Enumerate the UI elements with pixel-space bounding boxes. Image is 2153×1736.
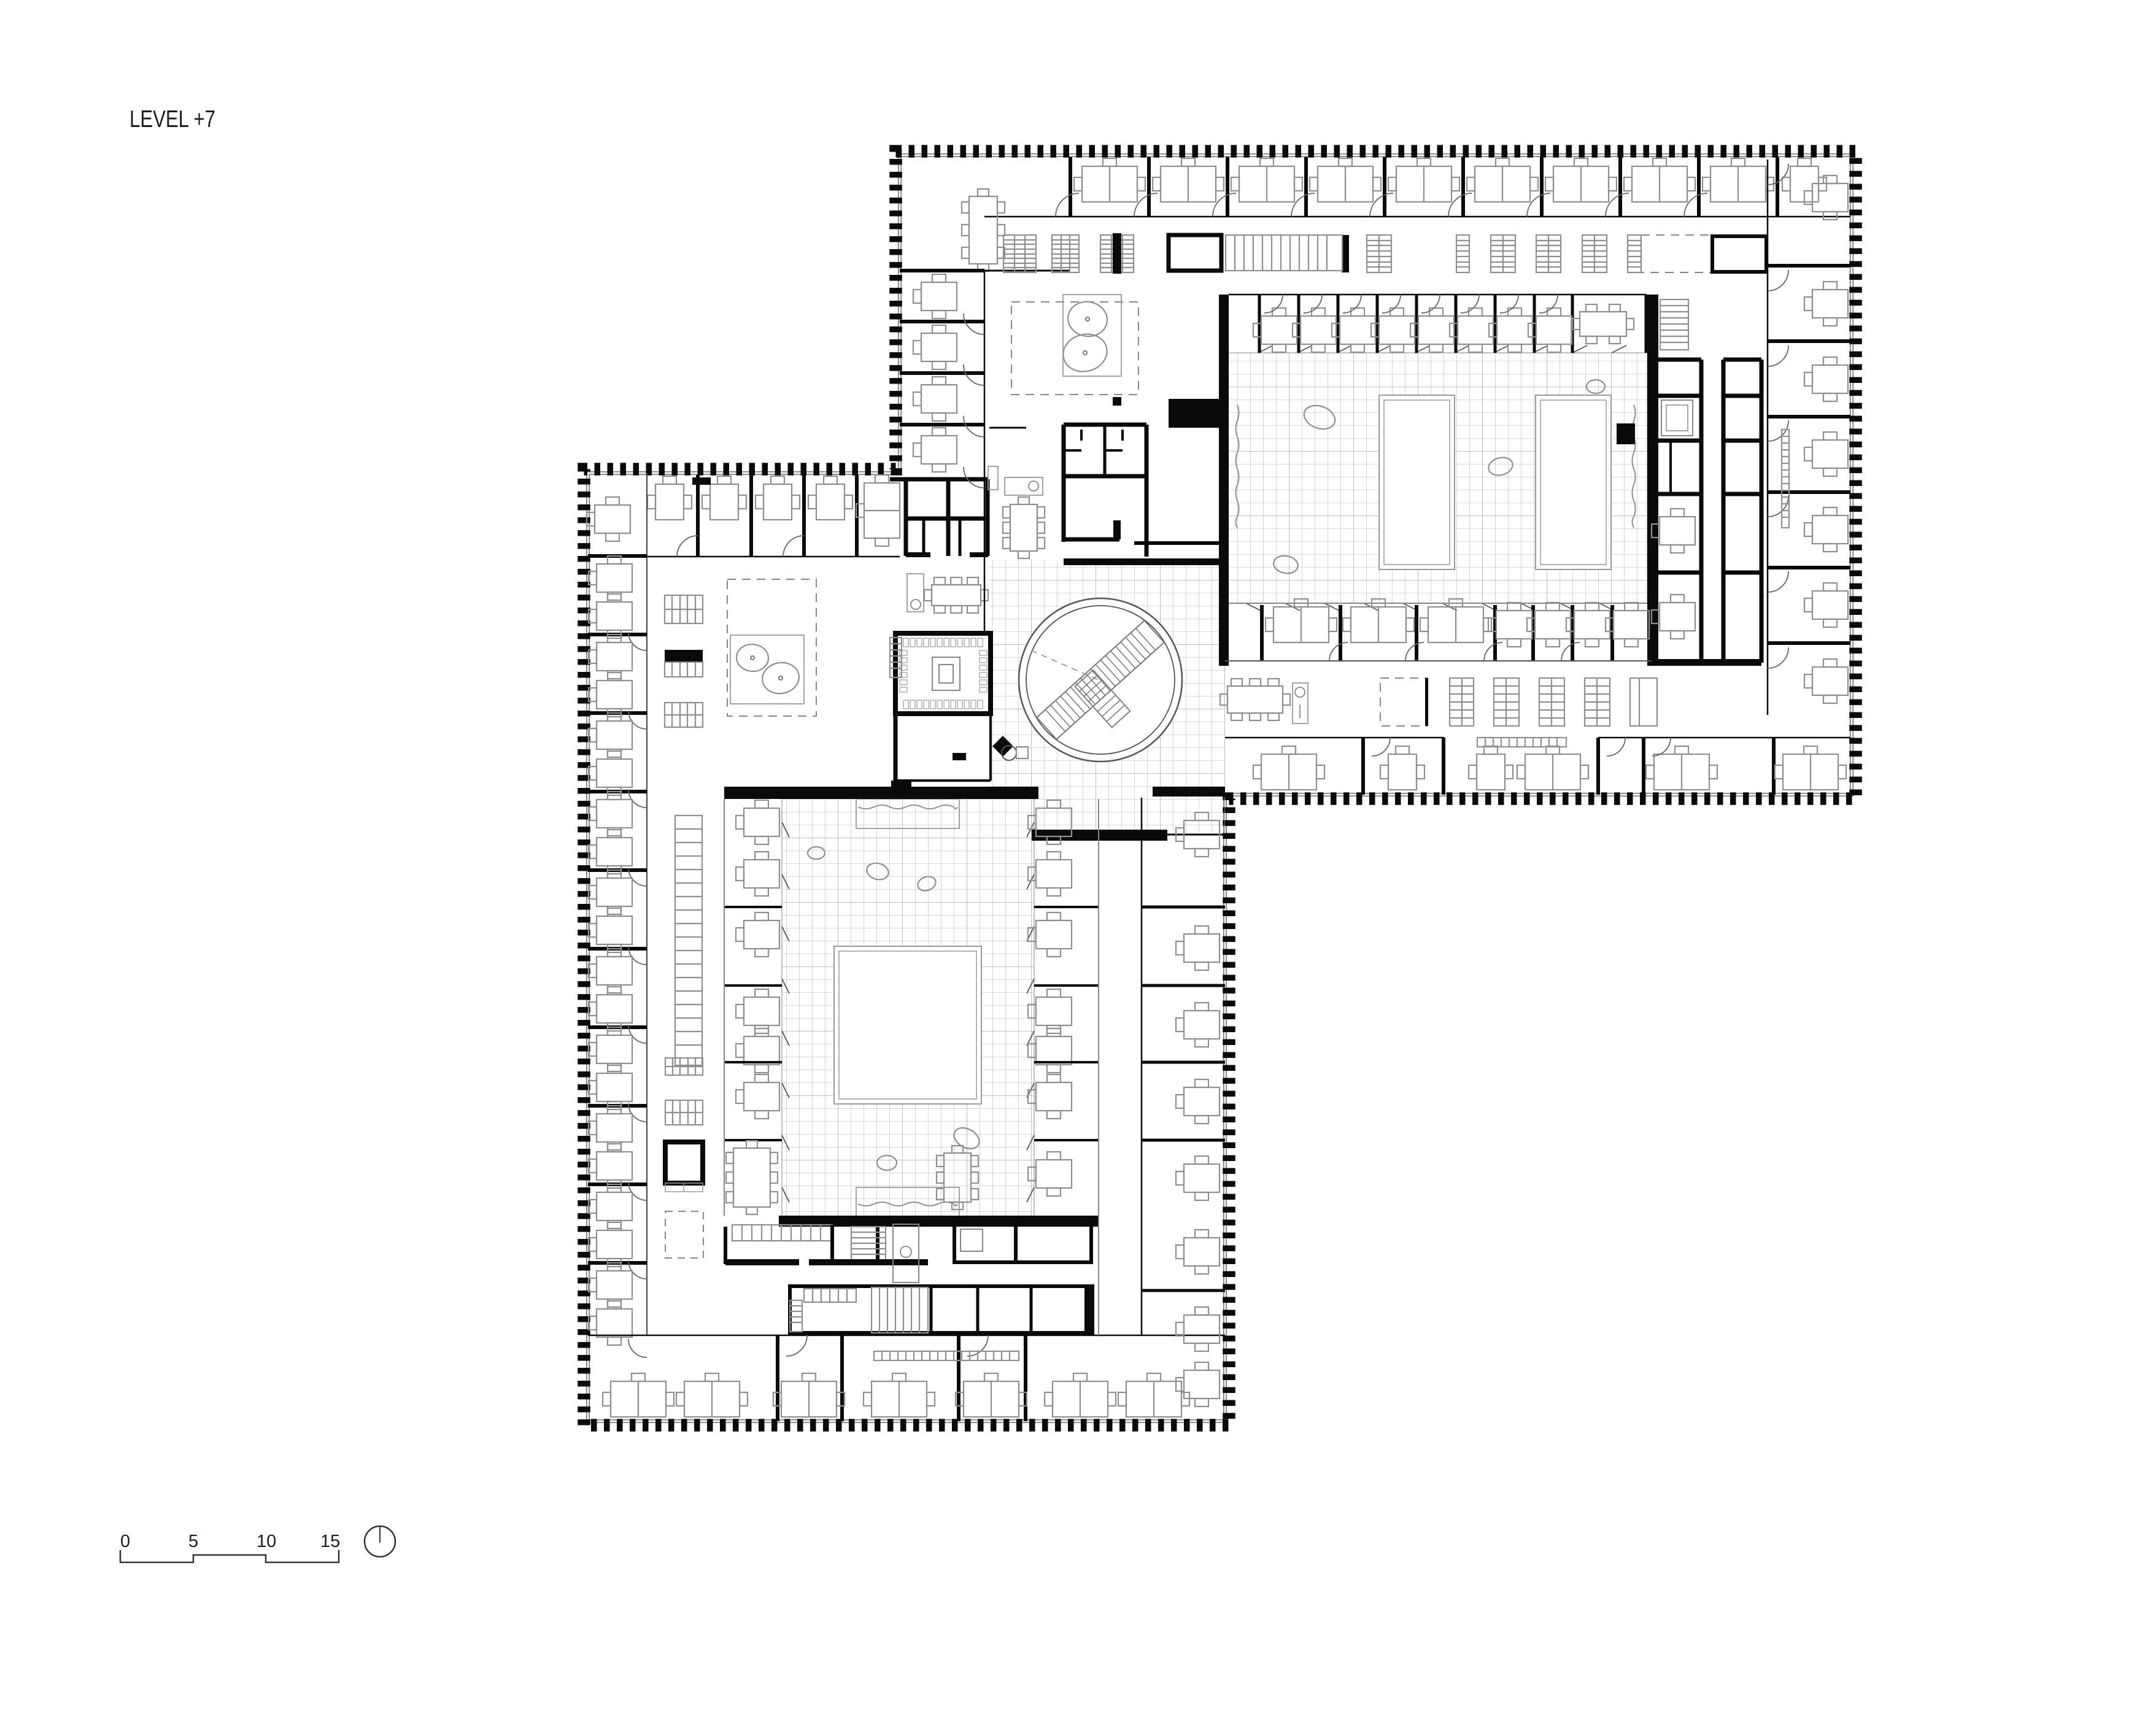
svg-text:LEVEL +7: LEVEL +7 [129, 106, 215, 133]
svg-text:15: 15 [320, 1532, 340, 1551]
svg-text:5: 5 [188, 1532, 198, 1551]
svg-text:10: 10 [257, 1532, 276, 1551]
svg-text:0: 0 [120, 1532, 130, 1551]
